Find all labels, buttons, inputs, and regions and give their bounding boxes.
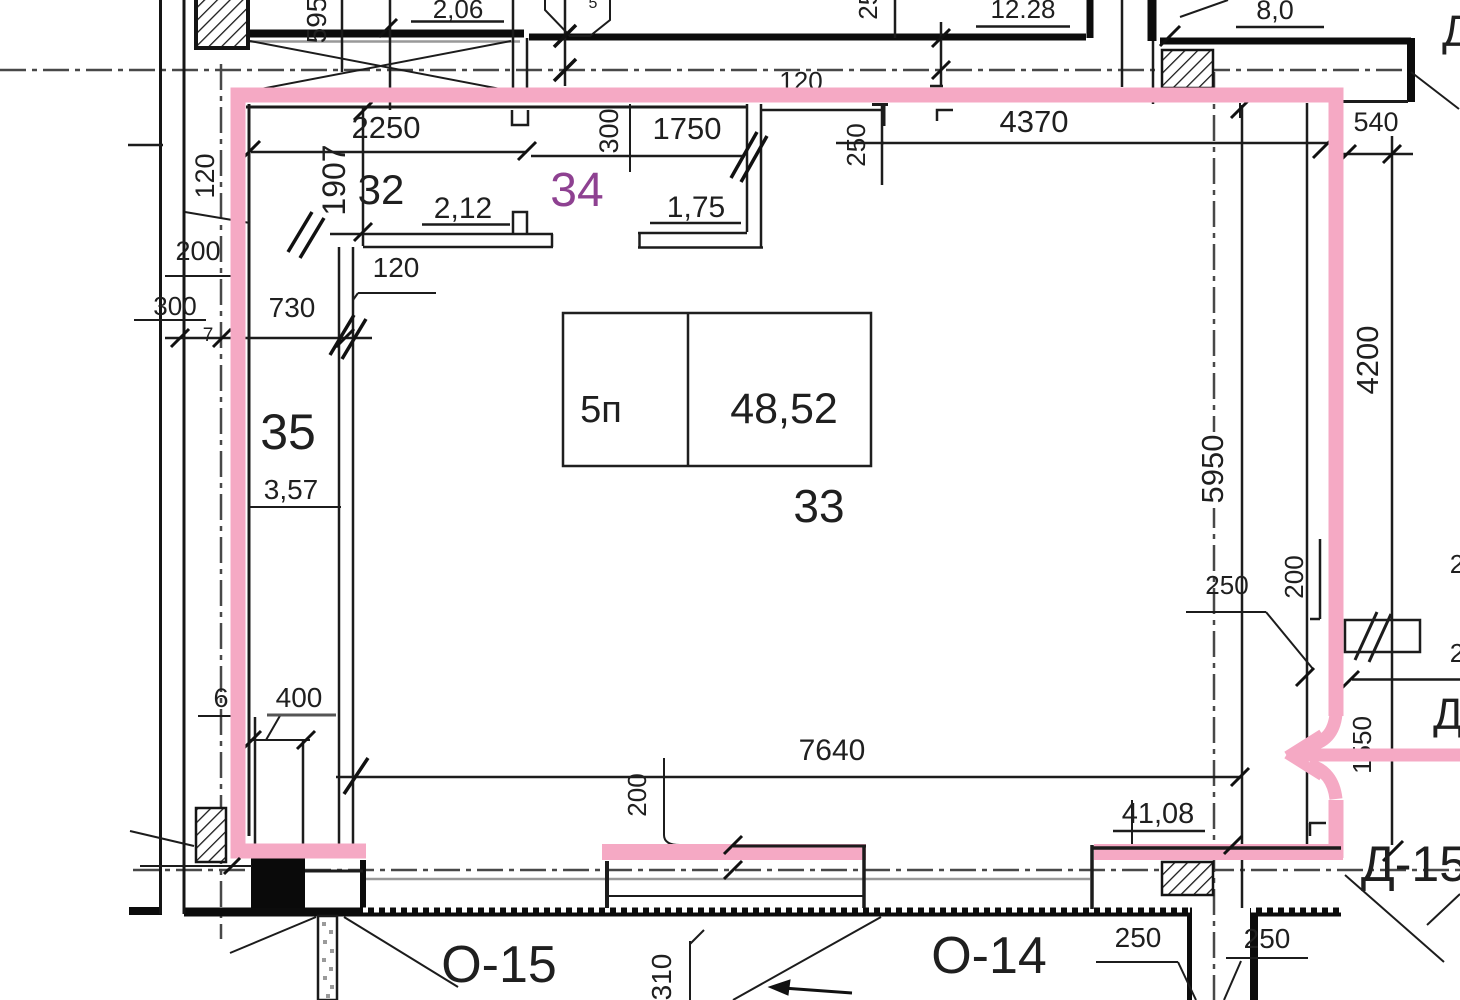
svg-text:1750: 1750 [653,111,722,146]
svg-text:540: 540 [1353,107,1398,137]
svg-text:34: 34 [550,164,603,217]
svg-text:5п: 5п [580,389,622,431]
svg-text:2250: 2250 [352,110,421,145]
svg-text:1,75: 1,75 [667,191,725,224]
svg-text:48,52: 48,52 [730,385,838,433]
svg-text:2,12: 2,12 [434,192,492,225]
svg-text:595: 595 [301,0,332,43]
svg-text:33: 33 [793,480,844,532]
svg-text:12.28: 12.28 [990,0,1055,24]
svg-text:6: 6 [213,683,228,713]
svg-text:8,0: 8,0 [1256,0,1294,25]
svg-text:310: 310 [646,954,677,1000]
svg-text:250: 250 [853,0,883,20]
svg-text:120: 120 [190,153,220,198]
svg-text:32: 32 [358,166,405,213]
svg-text:2: 2 [1450,638,1460,668]
svg-text:3,57: 3,57 [264,474,319,505]
svg-text:250: 250 [841,123,871,166]
svg-text:О-14: О-14 [931,927,1047,985]
svg-text:250: 250 [1244,923,1291,954]
svg-text:200: 200 [175,236,220,266]
svg-text:4200: 4200 [1350,326,1385,395]
svg-text:4370: 4370 [1000,104,1069,139]
svg-text:300: 300 [153,291,196,321]
svg-text:Д-15: Д-15 [1361,836,1460,892]
svg-text:730: 730 [269,292,316,323]
svg-text:35: 35 [260,404,316,460]
svg-text:5: 5 [589,0,598,12]
svg-text:41,08: 41,08 [1122,798,1195,830]
svg-text:300: 300 [594,108,624,153]
svg-text:Д: Д [1433,690,1460,739]
svg-text:120: 120 [373,252,420,283]
svg-text:2: 2 [1450,549,1460,579]
svg-text:250: 250 [1205,570,1248,600]
svg-text:7640: 7640 [799,734,866,767]
svg-text:400: 400 [276,682,323,713]
svg-text:Д: Д [1442,7,1460,56]
svg-text:200: 200 [622,773,652,816]
svg-text:1907: 1907 [316,144,352,215]
svg-text:200: 200 [1279,555,1309,598]
svg-text:О-15: О-15 [441,936,557,994]
svg-text:1550: 1550 [1347,716,1377,774]
svg-text:7: 7 [203,325,214,346]
svg-text:250: 250 [1115,922,1162,953]
svg-text:5950: 5950 [1195,435,1230,504]
